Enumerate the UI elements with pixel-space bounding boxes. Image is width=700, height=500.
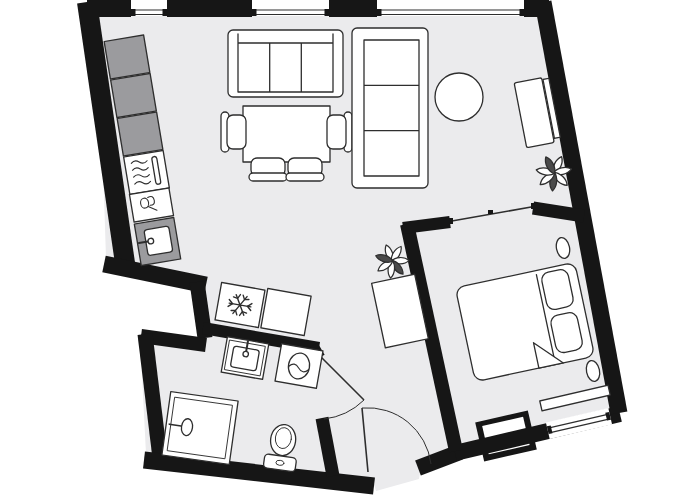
appliance-unit xyxy=(129,188,173,222)
faucet-icon xyxy=(148,238,154,244)
dining-table xyxy=(243,106,330,162)
wall-top-seg3 xyxy=(329,0,377,17)
dining-chair xyxy=(221,112,246,152)
lounge-sofa-3-seat xyxy=(352,28,428,188)
kitchen-cabinet-2 xyxy=(111,73,157,117)
round-table xyxy=(435,73,483,121)
stove xyxy=(124,150,170,194)
wall-top-seg1 xyxy=(87,0,131,17)
floor-plan-page xyxy=(0,0,700,500)
window-3 xyxy=(377,0,524,16)
dining-chair xyxy=(327,112,352,152)
sofa-3-seat xyxy=(228,30,343,97)
kitchen-sink xyxy=(134,217,180,265)
window-1 xyxy=(131,0,167,16)
faucet-icon xyxy=(243,351,249,357)
kitchen-cabinet-3 xyxy=(117,112,163,156)
floor-plan-canvas xyxy=(0,0,700,500)
storage-box xyxy=(261,288,311,335)
fridge-freezer xyxy=(215,282,265,327)
window-2 xyxy=(252,0,329,16)
wall-bedroom-top-right-stub xyxy=(533,208,584,216)
washing-machine xyxy=(275,344,323,389)
kitchen-cabinet-1 xyxy=(104,35,150,79)
washbasin xyxy=(221,337,269,380)
wall-bedroom-top-left-stub xyxy=(403,222,450,228)
dining-chair xyxy=(286,158,324,181)
wall-top-seg2 xyxy=(167,0,252,17)
dining-chair xyxy=(249,158,287,181)
wall-top-corner xyxy=(524,0,549,17)
shower xyxy=(162,392,238,465)
